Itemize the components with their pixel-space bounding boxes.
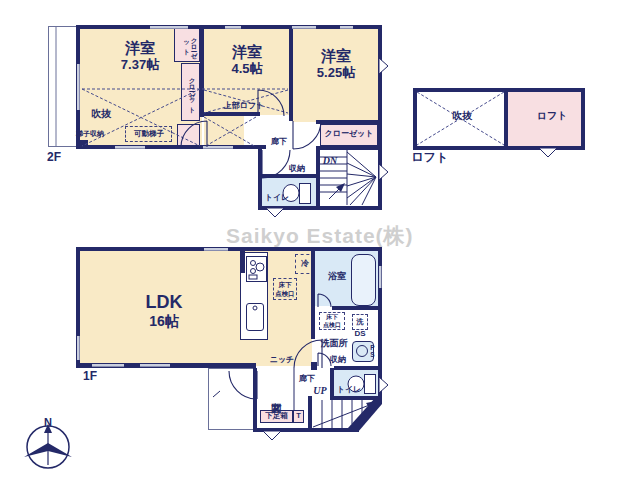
- toilet-1f-label: トイレ: [334, 386, 364, 395]
- void-2f-label: 吹抜: [84, 108, 118, 119]
- loft-room-label: ロフト: [532, 110, 572, 121]
- room-737-size: 7.37帖: [105, 58, 175, 73]
- floor1-label: 1F: [76, 370, 104, 383]
- loft-void-label: 吹抜: [444, 110, 480, 121]
- closet-mid-label: クローゼット: [185, 66, 196, 118]
- room-737-name: 洋室: [105, 40, 175, 57]
- watermark: Saikyo Estate(株): [226, 222, 414, 250]
- storage-2f-label: 収納: [285, 165, 309, 174]
- floor-hatch-wash-line2: 点検口: [319, 322, 345, 329]
- niche-label: ニッチ: [266, 356, 298, 365]
- compass-north-label: N: [41, 416, 55, 428]
- stairs-up-label: UP: [310, 385, 330, 396]
- hallway-1f-label: 廊下: [294, 375, 320, 384]
- north-compass-icon: [24, 424, 72, 468]
- room-45-size: 4.5帖: [217, 62, 277, 77]
- diagonal-wall: [348, 398, 382, 432]
- loft-caption: ロフト: [410, 151, 450, 164]
- shoe-box-t-label: T: [293, 412, 304, 420]
- toilet-2f-label: トイレ: [262, 194, 292, 203]
- ldk-size: 16帖: [133, 314, 195, 330]
- fridge-label: 冷: [295, 260, 315, 269]
- room-45-name: 洋室: [217, 44, 277, 61]
- ldk-name: LDK: [133, 292, 195, 312]
- stairs-down-label: DN: [319, 155, 341, 166]
- hallway-2f-label: 廊下: [266, 138, 292, 147]
- ladder-storage-label: 梯子収納: [72, 130, 108, 138]
- entrance-label: 玄関: [269, 382, 282, 408]
- shoe-box-label: 下足箱: [260, 412, 293, 420]
- floor-hatch-wash-line1: 床下: [319, 314, 345, 321]
- floor-hatch-kitchen-line1: 床下: [273, 281, 297, 288]
- floor-plan: 2F 洋室 7.37帖 洋室 4.5帖 洋室 5.25帖 クローゼット クローゼ…: [0, 0, 640, 480]
- floor-hatch-kitchen-line2: 点検口: [273, 290, 297, 297]
- floor2-label: 2F: [40, 151, 68, 164]
- movable-ladder-label: 可動梯子: [127, 130, 171, 138]
- bathroom-label: 浴室: [317, 271, 357, 281]
- pipe-space-label: PS: [368, 342, 376, 359]
- washer-label: 洗: [352, 318, 368, 326]
- closet-top-label: クローゼット: [176, 30, 198, 59]
- upper-loft-label: 上部ロフト: [222, 102, 266, 111]
- closet-525-label: クローゼット: [320, 130, 378, 139]
- storage-1f-label: 収納: [324, 356, 352, 365]
- washroom-label: 洗面所: [314, 338, 354, 348]
- room-525-name: 洋室: [305, 48, 367, 65]
- room-525-size: 5.25帖: [305, 66, 367, 81]
